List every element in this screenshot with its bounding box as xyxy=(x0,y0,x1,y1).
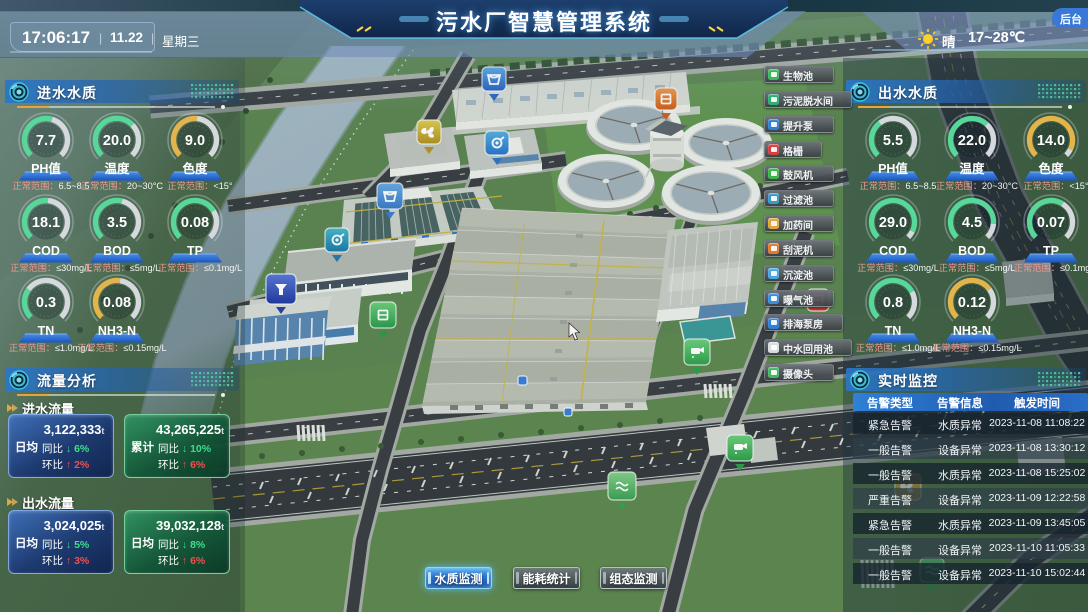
svg-text:BOD: BOD xyxy=(103,244,131,258)
svg-text:0.08: 0.08 xyxy=(103,295,131,311)
svg-text:29.0: 29.0 xyxy=(879,215,907,231)
svg-text:TN: TN xyxy=(885,324,902,338)
svg-text:TN: TN xyxy=(38,324,55,338)
svg-text:NH3-N: NH3-N xyxy=(953,324,991,338)
svg-text:NH3-N: NH3-N xyxy=(98,324,136,338)
svg-text:18.1: 18.1 xyxy=(32,215,60,231)
svg-text:0.3: 0.3 xyxy=(36,295,56,311)
svg-text:PH值: PH值 xyxy=(878,161,908,176)
svg-text:正常范围：≤0.15mg/L: 正常范围：≤0.15mg/L xyxy=(77,342,166,353)
svg-text:色度: 色度 xyxy=(1038,161,1064,176)
svg-text:TP: TP xyxy=(1043,244,1059,258)
svg-text:正常范围：≤30mg/L: 正常范围：≤30mg/L xyxy=(10,262,92,273)
svg-text:7.7: 7.7 xyxy=(36,133,56,149)
svg-text:0.08: 0.08 xyxy=(181,215,209,231)
svg-text:22.0: 22.0 xyxy=(958,133,986,149)
svg-text:温度: 温度 xyxy=(959,161,985,176)
svg-text:9.0: 9.0 xyxy=(185,133,205,149)
svg-text:正常范围：<15°: 正常范围：<15° xyxy=(1023,180,1088,191)
svg-text:3.5: 3.5 xyxy=(107,215,127,231)
svg-text:正常范围：≤5mg/L: 正常范围：≤5mg/L xyxy=(84,262,161,273)
svg-text:0.8: 0.8 xyxy=(883,295,903,311)
svg-text:COD: COD xyxy=(879,244,907,258)
svg-text:色度: 色度 xyxy=(182,161,208,176)
svg-text:正常范围：6.5~8.5: 正常范围：6.5~8.5 xyxy=(13,180,90,191)
svg-text:PH值: PH值 xyxy=(31,161,61,176)
svg-text:正常范围：≤5mg/L: 正常范围：≤5mg/L xyxy=(939,262,1016,273)
svg-text:BOD: BOD xyxy=(958,244,986,258)
svg-text:正常范围：<15°: 正常范围：<15° xyxy=(167,180,233,191)
svg-text:正常范围：≤0.15mg/L: 正常范围：≤0.15mg/L xyxy=(932,342,1021,353)
svg-text:正常范围：≤1.0mg/L: 正常范围：≤1.0mg/L xyxy=(856,342,940,353)
svg-text:COD: COD xyxy=(32,244,60,258)
svg-text:TP: TP xyxy=(187,244,203,258)
svg-text:正常范围：≤0.1mg/L: 正常范围：≤0.1mg/L xyxy=(158,262,242,273)
svg-text:5.5: 5.5 xyxy=(883,133,903,149)
svg-text:正常范围：20~30°C: 正常范围：20~30°C xyxy=(81,180,163,191)
svg-text:20.0: 20.0 xyxy=(103,133,131,149)
svg-text:正常范围：≤0.1mg/L: 正常范围：≤0.1mg/L xyxy=(1014,262,1088,273)
svg-text:4.5: 4.5 xyxy=(962,215,982,231)
svg-text:14.0: 14.0 xyxy=(1037,133,1065,149)
svg-text:温度: 温度 xyxy=(104,161,130,176)
svg-text:0.12: 0.12 xyxy=(958,295,986,311)
svg-text:正常范围：6.5~8.5: 正常范围：6.5~8.5 xyxy=(860,180,937,191)
svg-text:正常范围：≤30mg/L: 正常范围：≤30mg/L xyxy=(857,262,939,273)
svg-text:0.07: 0.07 xyxy=(1037,215,1065,231)
svg-text:正常范围：20~30°C: 正常范围：20~30°C xyxy=(936,180,1018,191)
